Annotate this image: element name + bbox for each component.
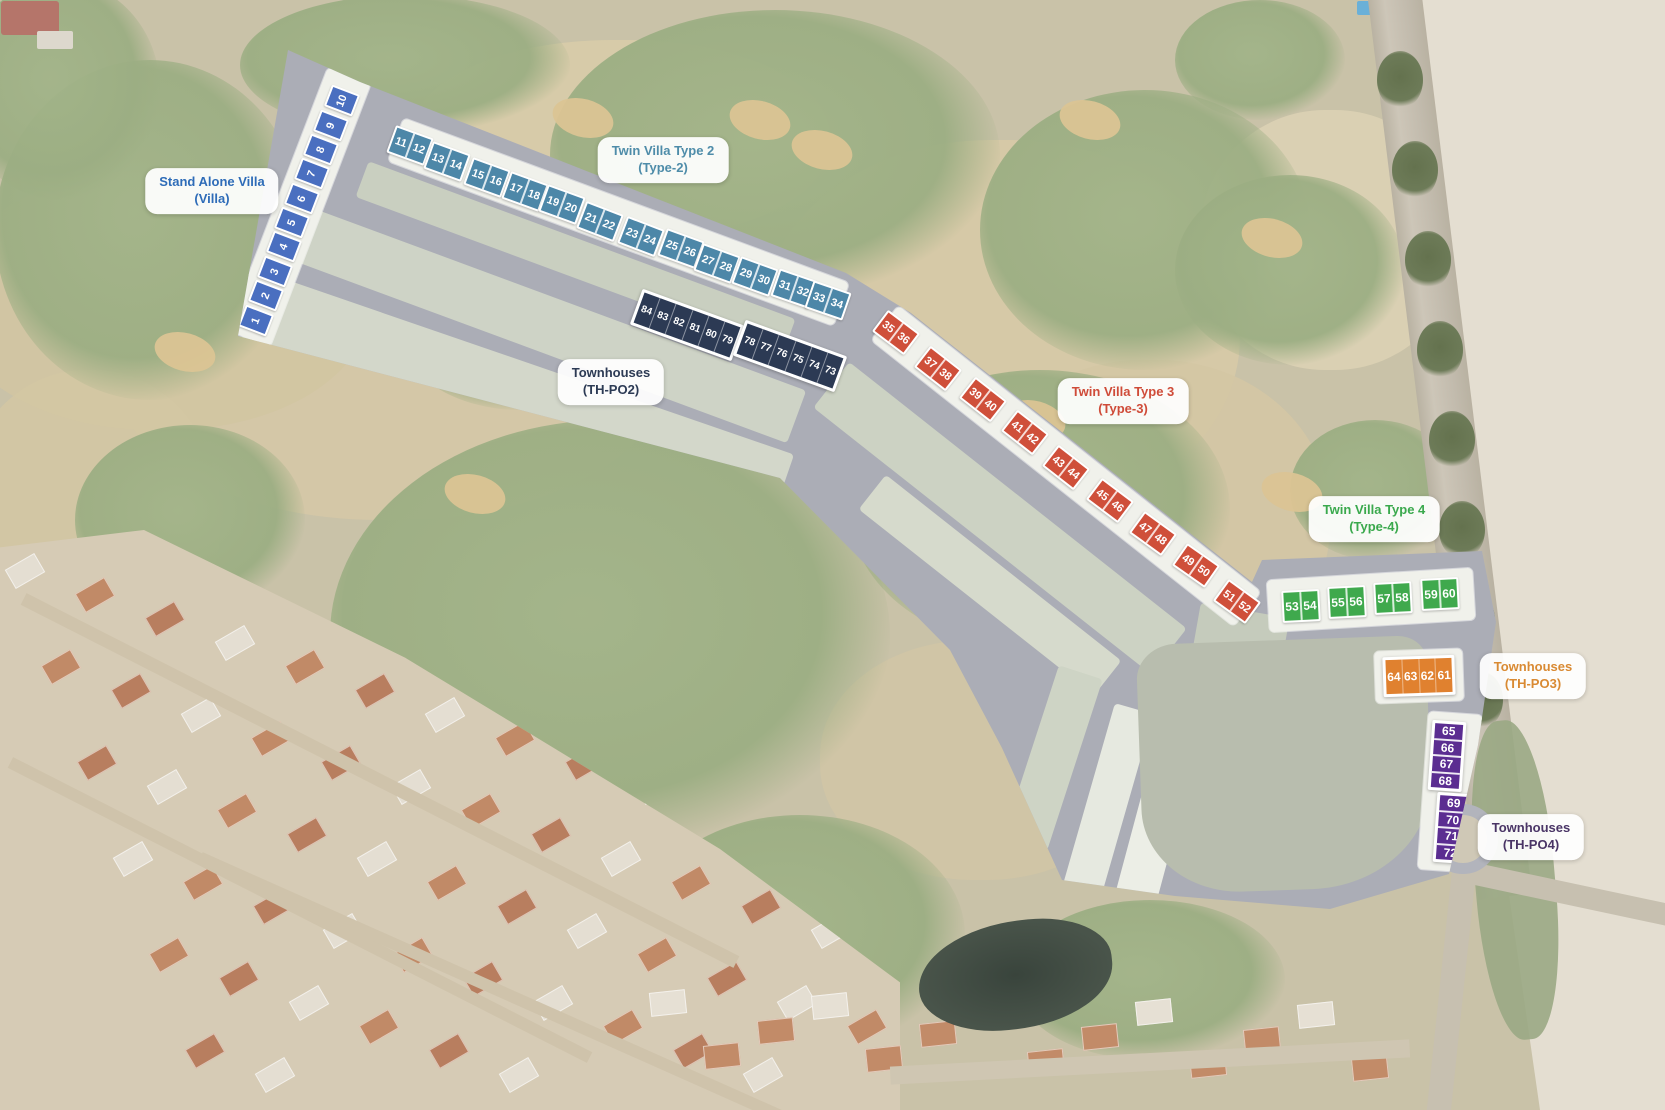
house	[185, 1033, 225, 1069]
plot-number: 36	[895, 329, 912, 346]
plot-60[interactable]: 60	[1438, 579, 1457, 608]
house	[41, 649, 81, 685]
plot-number: 29	[738, 265, 754, 280]
plot-number: 22	[601, 217, 617, 233]
access-road	[1426, 854, 1477, 1110]
plot-number: 56	[1349, 594, 1363, 609]
plot-number: 74	[807, 358, 821, 372]
house	[355, 673, 395, 709]
label-townhouses-th-po2: Townhouses(TH-PO2)	[558, 359, 664, 405]
label-stand-alone-villa-line2: (Villa)	[159, 191, 264, 208]
plot-number: 5	[285, 217, 298, 227]
label-townhouses-th-po2-line1: Townhouses	[572, 365, 650, 382]
plot-number: 65	[1442, 724, 1456, 739]
tree-line	[1392, 141, 1438, 199]
plot-pair-59-60[interactable]: 5960	[1420, 577, 1460, 611]
plot-number: 2	[259, 290, 272, 300]
house	[601, 841, 641, 877]
plot-number: 83	[656, 309, 670, 323]
masterplan-map: 1234567891011121314151617181920212223242…	[0, 0, 1665, 1110]
house	[497, 889, 537, 925]
tree-line	[1405, 231, 1451, 289]
label-stand-alone-villa-line1: Stand Alone Villa	[159, 174, 264, 191]
house	[217, 793, 257, 829]
plot-number: 48	[1152, 530, 1169, 547]
plot-number: 77	[759, 340, 773, 354]
plot-number: 31	[777, 277, 792, 292]
house	[111, 673, 151, 709]
label-twin-villa-type-3-line1: Twin Villa Type 3	[1072, 384, 1175, 401]
house	[567, 913, 607, 949]
plot-67[interactable]: 67	[1432, 754, 1461, 772]
house	[215, 625, 255, 661]
plot-number: 55	[1331, 595, 1345, 610]
plot-number: 73	[823, 364, 837, 378]
plot-number: 7	[305, 168, 318, 178]
house	[1081, 1023, 1119, 1051]
plot-number: 33	[811, 289, 826, 304]
house	[147, 769, 187, 805]
house	[145, 601, 185, 637]
plot-number: 81	[688, 321, 702, 335]
building	[1, 1, 59, 35]
house	[1135, 998, 1173, 1026]
plot-number: 57	[1377, 591, 1391, 606]
plot-number: 69	[1447, 796, 1461, 811]
label-twin-villa-type-2: Twin Villa Type 2(Type-2)	[598, 137, 729, 183]
plot-59[interactable]: 59	[1422, 580, 1439, 609]
label-townhouses-th-po4-line2: (TH-PO4)	[1492, 837, 1570, 854]
plot-number: 46	[1109, 497, 1126, 514]
plot-number: 11	[394, 134, 409, 149]
label-stand-alone-villa: Stand Alone Villa(Villa)	[145, 168, 278, 214]
plot-58[interactable]: 58	[1391, 583, 1410, 612]
house	[757, 1017, 795, 1045]
label-twin-villa-type-3-line2: (Type-3)	[1072, 401, 1175, 418]
plot-number: 63	[1404, 669, 1418, 683]
plot-number: 62	[1420, 668, 1434, 682]
plot-number: 4	[277, 241, 290, 251]
house	[357, 841, 397, 877]
plot-number: 13	[430, 150, 446, 165]
house	[531, 817, 571, 853]
plot-number: 80	[704, 327, 718, 341]
label-twin-villa-type-3: Twin Villa Type 3(Type-3)	[1058, 378, 1189, 424]
plot-62[interactable]: 62	[1418, 658, 1436, 693]
plot-number: 75	[791, 352, 805, 366]
plot-number: 25	[664, 237, 680, 252]
plot-number: 28	[718, 259, 734, 274]
house	[649, 989, 687, 1017]
th-block-65-68[interactable]: 65666768	[1428, 720, 1467, 792]
plot-number: 50	[1195, 562, 1212, 579]
plot-68[interactable]: 68	[1431, 770, 1460, 788]
plot-64[interactable]: 64	[1385, 660, 1402, 695]
plot-number: 26	[682, 244, 698, 259]
house	[77, 745, 117, 781]
label-townhouses-th-po4-line1: Townhouses	[1492, 820, 1570, 837]
house	[287, 817, 327, 853]
tree-line	[1429, 411, 1475, 469]
plot-number: 8	[314, 144, 327, 154]
plot-number: 24	[642, 232, 658, 248]
label-townhouses-th-po3-line2: (TH-PO3)	[1494, 676, 1572, 693]
house	[1297, 1001, 1335, 1029]
building	[37, 31, 73, 49]
plot-number: 42	[1024, 429, 1041, 446]
plot-63[interactable]: 63	[1401, 659, 1419, 694]
label-townhouses-th-po3: Townhouses(TH-PO3)	[1480, 653, 1586, 699]
plot-number: 6	[295, 193, 308, 203]
plot-54[interactable]: 54	[1299, 591, 1318, 620]
plot-number: 23	[624, 225, 640, 241]
plot-number: 30	[756, 272, 772, 287]
plot-number: 53	[1285, 599, 1299, 614]
house	[289, 985, 329, 1021]
plot-number: 54	[1303, 598, 1317, 613]
plot-number: 27	[700, 252, 716, 267]
golf-green	[1175, 0, 1345, 120]
plot-number: 68	[1438, 773, 1452, 788]
plot-number: 18	[526, 187, 542, 202]
plot-number: 16	[488, 173, 504, 188]
plot-57[interactable]: 57	[1375, 584, 1392, 613]
label-twin-villa-type-4-line2: (Type-4)	[1323, 519, 1426, 536]
house	[359, 1009, 399, 1045]
plot-53[interactable]: 53	[1283, 592, 1300, 621]
house	[671, 865, 711, 901]
label-townhouses-th-po3-line1: Townhouses	[1494, 659, 1572, 676]
house	[255, 1057, 295, 1093]
plot-55[interactable]: 55	[1329, 588, 1346, 617]
plot-number: 38	[937, 365, 954, 382]
house	[219, 961, 259, 997]
plot-pair-57-58[interactable]: 5758	[1373, 581, 1413, 615]
plot-number: 67	[1439, 757, 1453, 772]
plot-number: 79	[720, 333, 734, 347]
plot-number: 84	[640, 303, 654, 317]
plot-number: 76	[775, 346, 789, 360]
plot-number: 9	[324, 120, 337, 130]
plot-number: 58	[1395, 590, 1409, 605]
plot-number: 66	[1440, 740, 1454, 755]
plot-number: 3	[268, 266, 281, 276]
plot-61[interactable]: 61	[1435, 658, 1453, 693]
plot-number: 1	[249, 315, 262, 325]
house	[75, 577, 115, 613]
plot-number: 40	[982, 396, 999, 413]
plot-number: 21	[583, 210, 599, 226]
plot-pair-53-54[interactable]: 5354	[1281, 589, 1321, 623]
tree-line	[1439, 501, 1485, 559]
plot-number: 15	[470, 166, 486, 181]
plot-number: 12	[411, 141, 427, 156]
plot-number: 14	[448, 157, 464, 172]
plot-66[interactable]: 66	[1433, 738, 1462, 756]
plot-number: 52	[1236, 598, 1253, 615]
house	[811, 992, 849, 1020]
plot-number: 59	[1424, 587, 1438, 602]
plot-number: 10	[334, 92, 350, 108]
house	[5, 553, 45, 589]
house	[427, 865, 467, 901]
th-block-64-61[interactable]: 64636261	[1382, 655, 1455, 697]
house	[703, 1042, 741, 1070]
plot-56[interactable]: 56	[1345, 587, 1364, 616]
tree-line	[1417, 321, 1463, 379]
label-twin-villa-type-4-line1: Twin Villa Type 4	[1323, 502, 1426, 519]
house	[149, 937, 189, 973]
label-townhouses-th-po4: Townhouses(TH-PO4)	[1478, 814, 1584, 860]
plot-number: 61	[1437, 668, 1451, 682]
golf-green	[1175, 175, 1405, 365]
tree-line	[1377, 51, 1423, 109]
label-townhouses-th-po2-line2: (TH-PO2)	[572, 382, 650, 399]
house	[113, 841, 153, 877]
plot-number: 20	[563, 200, 579, 215]
plot-number: 19	[545, 193, 561, 208]
plot-number: 60	[1442, 586, 1456, 601]
label-twin-villa-type-2-line2: (Type-2)	[612, 160, 715, 177]
house	[425, 697, 465, 733]
label-twin-villa-type-4: Twin Villa Type 4(Type-4)	[1309, 496, 1440, 542]
house	[285, 649, 325, 685]
plot-number: 64	[1387, 670, 1401, 684]
label-twin-villa-type-2-line1: Twin Villa Type 2	[612, 143, 715, 160]
plot-number: 34	[829, 295, 844, 310]
house	[741, 889, 781, 925]
plot-pair-55-56[interactable]: 5556	[1327, 585, 1367, 619]
plot-number: 78	[743, 334, 757, 348]
house	[499, 1057, 539, 1093]
plot-number: 82	[672, 315, 686, 329]
plot-number: 44	[1065, 464, 1082, 481]
house	[429, 1033, 469, 1069]
plot-number: 17	[508, 180, 524, 195]
plot-number: 70	[1445, 812, 1459, 827]
